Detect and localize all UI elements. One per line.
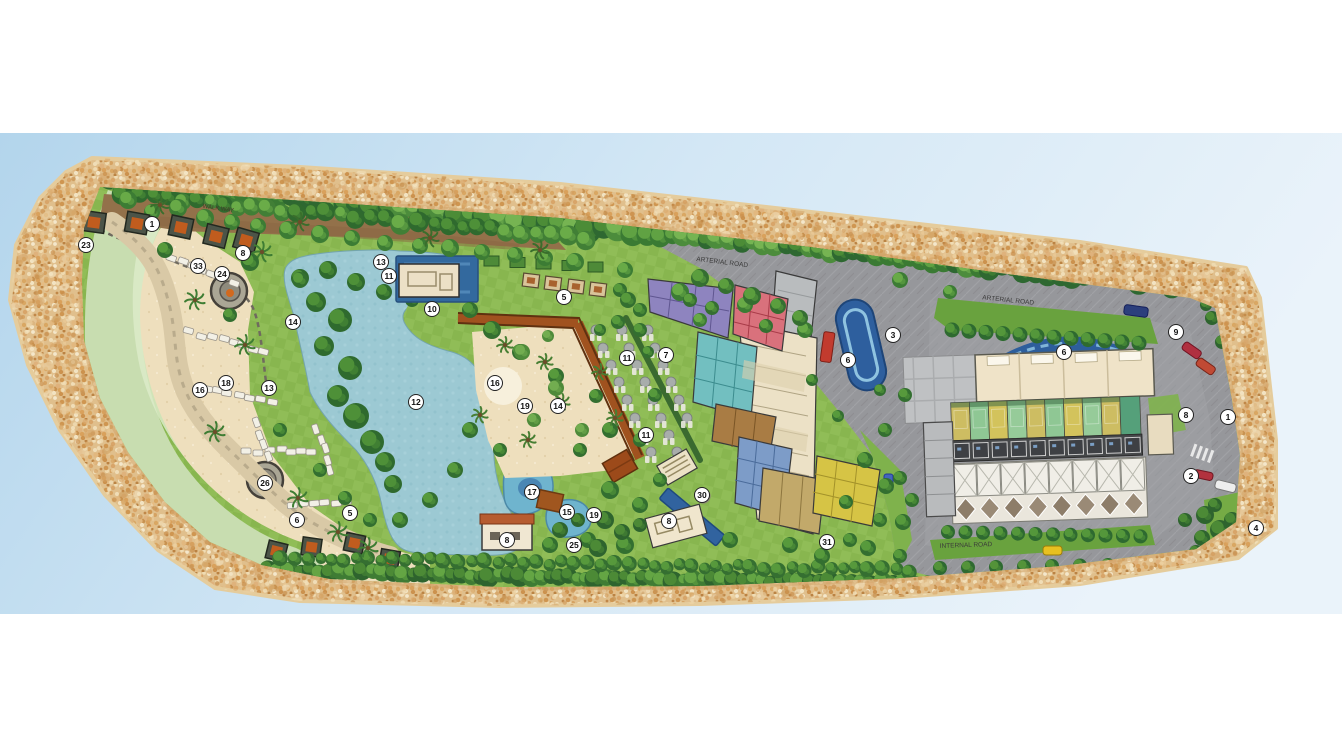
- svg-text:30: 30: [697, 490, 707, 500]
- svg-text:11: 11: [642, 430, 651, 440]
- svg-text:6: 6: [295, 515, 300, 525]
- svg-text:23: 23: [81, 240, 91, 250]
- svg-text:7: 7: [664, 350, 669, 360]
- svg-text:18: 18: [221, 378, 231, 388]
- svg-text:5: 5: [348, 508, 353, 518]
- svg-text:16: 16: [490, 378, 500, 388]
- svg-text:6: 6: [846, 355, 851, 365]
- svg-text:14: 14: [288, 317, 298, 327]
- svg-text:33: 33: [193, 261, 203, 271]
- svg-text:12: 12: [411, 397, 421, 407]
- svg-text:6: 6: [1062, 347, 1067, 357]
- svg-text:19: 19: [589, 510, 599, 520]
- svg-text:1: 1: [1226, 412, 1231, 422]
- svg-text:8: 8: [241, 248, 246, 258]
- svg-text:13: 13: [376, 257, 386, 267]
- svg-text:5: 5: [562, 292, 567, 302]
- svg-text:24: 24: [217, 269, 227, 279]
- svg-text:17: 17: [527, 487, 537, 497]
- svg-text:31: 31: [822, 537, 832, 547]
- svg-text:26: 26: [260, 478, 270, 488]
- svg-text:8: 8: [505, 535, 510, 545]
- svg-text:2: 2: [1189, 471, 1194, 481]
- svg-text:4: 4: [1254, 523, 1259, 533]
- svg-text:16: 16: [195, 385, 205, 395]
- svg-text:8: 8: [667, 516, 672, 526]
- svg-text:9: 9: [1174, 327, 1179, 337]
- svg-text:3: 3: [891, 330, 896, 340]
- svg-text:13: 13: [264, 383, 274, 393]
- svg-text:8: 8: [1184, 410, 1189, 420]
- svg-text:11: 11: [623, 353, 632, 363]
- svg-text:15: 15: [562, 507, 572, 517]
- svg-text:10: 10: [427, 304, 437, 314]
- svg-text:14: 14: [553, 401, 563, 411]
- svg-text:1: 1: [150, 219, 155, 229]
- svg-text:11: 11: [385, 271, 394, 281]
- svg-text:25: 25: [569, 540, 579, 550]
- svg-text:19: 19: [520, 401, 530, 411]
